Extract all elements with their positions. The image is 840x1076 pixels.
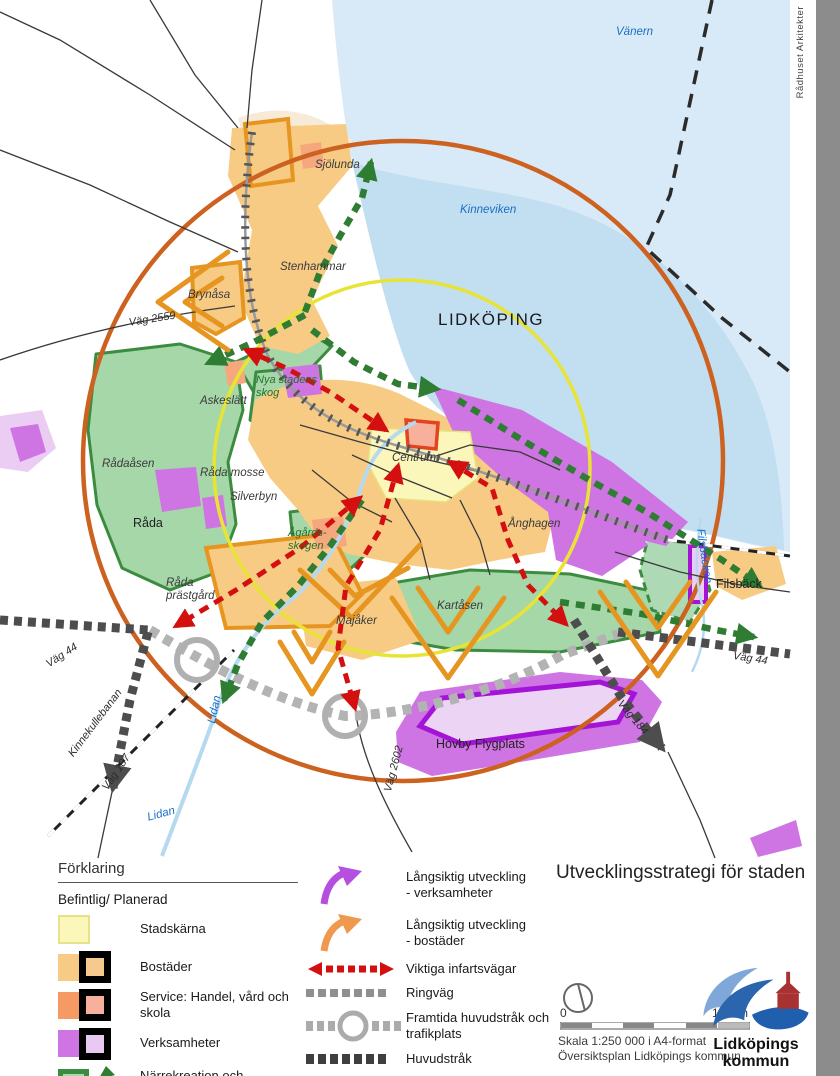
stadskarna-swatch	[58, 915, 90, 944]
legend-item-ringvag: Ringväg	[306, 985, 568, 1001]
legend-item-narrekreation: Närrekreation och grönstråk	[58, 1066, 310, 1076]
page: VänernKinnevikenLIDKÖPINGSjölundaStenham…	[0, 0, 840, 1076]
scalebar-zero: 0	[560, 1006, 567, 1020]
credit-strip: Rådhuset Arkitekter	[793, 6, 813, 226]
legend-item-longterm-verksamheter: Långsiktig utveckling - verksamheter	[306, 864, 568, 906]
legend-label: Service: Handel, vård och skola	[140, 989, 310, 1022]
purple-arrow-icon	[314, 864, 366, 906]
legend-item-longterm-bostader: Långsiktig utveckling - bostäder	[306, 913, 568, 953]
legend-item-huvudstrak: Huvudstråk	[306, 1051, 568, 1067]
legend: Förklaring Befintlig/ Planerad Stadskärn…	[58, 860, 310, 1076]
bostader-planned-swatch	[79, 951, 111, 983]
credit-text: Rådhuset Arkitekter	[795, 6, 806, 98]
logo-line1: Lidköpings	[713, 1036, 798, 1053]
legend-label: Bostäder	[140, 959, 192, 975]
legend-item-infartsvagar: Viktiga infartsvägar	[306, 960, 568, 978]
legend-subheader: Befintlig/ Planerad	[58, 892, 310, 907]
orange-arrow-icon	[314, 913, 366, 953]
map-canvas	[0, 0, 816, 860]
dark-brick-icon	[306, 1053, 396, 1065]
legend-item-stadskarna: Stadskärna	[58, 913, 310, 945]
legend-item-verksamheter: Verksamheter	[58, 1028, 310, 1060]
legend-symbols: Långsiktig utveckling - verksamheter Lån…	[306, 864, 568, 1076]
legend-item-framtida-huvudstrak: Framtida huvudstråk och trafikplats	[306, 1008, 568, 1044]
gray-dash-icon	[306, 988, 396, 998]
legend-label: Stadskärna	[140, 921, 206, 937]
verksamheter-planned-swatch	[79, 1028, 111, 1060]
municipality-logo: Lidköpingskommun	[696, 962, 816, 1071]
legend-item-service: Service: Handel, vård och skola	[58, 989, 310, 1022]
legend-label: Närrekreation och grönstråk	[140, 1068, 243, 1076]
legend-label: Långsiktig utveckling - bostäder	[406, 917, 526, 950]
legend-label: Huvudstråk	[406, 1051, 472, 1067]
legend-label: Framtida huvudstråk och trafikplats	[406, 1010, 568, 1043]
green-dashed-arrow-icon	[93, 1066, 117, 1076]
service-planned-swatch	[79, 989, 111, 1021]
red-double-arrow-icon	[306, 960, 396, 978]
planned-housing-sjolunda	[245, 119, 293, 186]
legend-label: Verksamheter	[140, 1035, 220, 1051]
page-title: Utvecklingsstrategi för staden	[556, 862, 812, 884]
legend-item-bostader: Bostäder	[58, 951, 310, 983]
logo-line2: kommun	[723, 1053, 790, 1070]
logo-text: Lidköpingskommun	[696, 1037, 816, 1071]
right-border-bar	[816, 0, 840, 1076]
legend-label: Ringväg	[406, 985, 454, 1001]
gronstrak-swatch	[58, 1069, 89, 1076]
legend-header: Förklaring	[58, 860, 298, 883]
future-route-interchange-icon	[306, 1008, 402, 1044]
lidkoping-logo-icon	[697, 962, 815, 1036]
map: VänernKinnevikenLIDKÖPINGSjölundaStenham…	[0, 0, 816, 860]
scale-text: Skala 1:250 000 i A4-format	[558, 1034, 706, 1048]
legend-label: Viktiga infartsvägar	[406, 961, 516, 977]
legend-label: Långsiktig utveckling - verksamheter	[406, 869, 526, 902]
